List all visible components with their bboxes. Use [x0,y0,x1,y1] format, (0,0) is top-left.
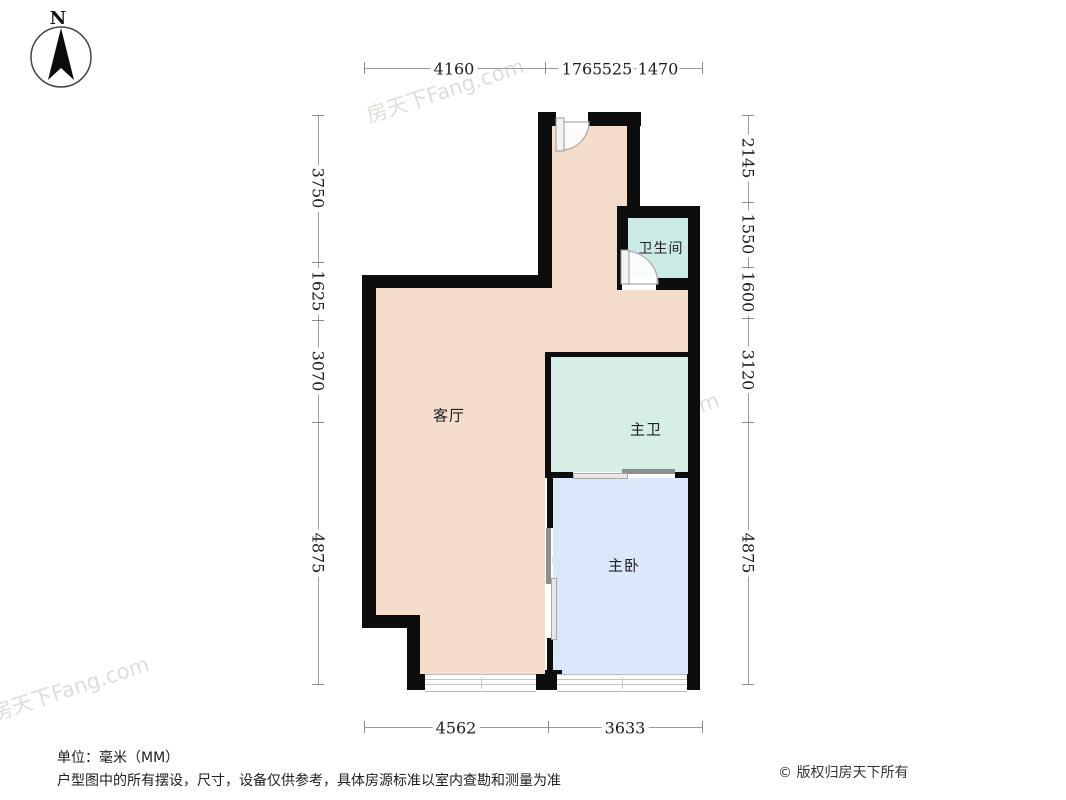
wall-right-exterior [688,206,700,690]
room-label-bathroom: 卫生间 [639,238,684,258]
floorplan-page: N 房天下Fang.com 房天下Fang.com 房天下Fang.com 房天… [0,0,1066,800]
wall-living-top [362,275,552,288]
dimension-right-2: 1550 [739,211,758,258]
dimension-top-1: 4160 [431,60,478,79]
dimension-left-3: 3070 [309,348,328,395]
dimension-top-2: 1765 [559,60,606,79]
room-label-living: 客厅 [433,405,465,426]
floor-master-bathroom [551,357,688,472]
dimension-bottom-2: 3633 [602,719,649,738]
copyright-text: © 版权归房天下所有 [778,762,908,782]
disclaimer-text: 户型图中的所有摆设，尺寸，设备仅供参考，具体房源标准以室内查勘和测量为准 [57,770,561,790]
dimension-right-3: 1600 [739,269,758,316]
dimension-left-4: 4875 [309,530,328,577]
living-window [425,674,536,692]
entry-door-icon [552,114,598,158]
bedroom-window [557,674,687,692]
watermark: 房天下Fang.com [0,648,153,727]
bedroom-sliding-door-panel [546,528,551,584]
room-label-master-bathroom: 主卫 [630,419,662,440]
dimension-line-right [748,115,749,684]
wall-bedroom-divider-upper [547,478,553,528]
dimension-bottom-1: 4562 [433,719,480,738]
dimension-right-5: 4875 [739,530,758,577]
room-label-master-bedroom: 主卧 [608,555,640,576]
dimension-left-2: 1625 [309,268,328,315]
unit-note: 单位：毫米（MM） [57,747,179,767]
floor-living-upper [376,288,688,352]
wall-bedroom-divider-lower [547,638,553,674]
dimension-top-3: 525 [601,60,634,79]
wall-living-masterbath-divider [545,352,551,478]
wall-masterbath-top [545,352,700,357]
wall-left-exterior [362,275,376,628]
dimension-right-4: 3120 [739,347,758,394]
masterbath-sliding-door-panel [622,469,675,474]
wall-entry-right [627,112,640,218]
dimension-left-1: 3750 [309,165,328,212]
wall-entry-left [538,112,552,288]
compass-icon [24,22,98,92]
floor-living-lower [420,615,545,674]
dimension-top-4: 1470 [637,60,680,79]
floor-living-main [376,352,545,615]
bedroom-sliding-door-panel [551,578,557,640]
masterbath-sliding-door-panel [573,473,628,479]
dimension-line-bottom [364,727,702,728]
dimension-right-1: 2145 [739,135,758,182]
wall-masterbath-bottom-right [675,472,700,478]
floor-master-bedroom [553,478,688,674]
